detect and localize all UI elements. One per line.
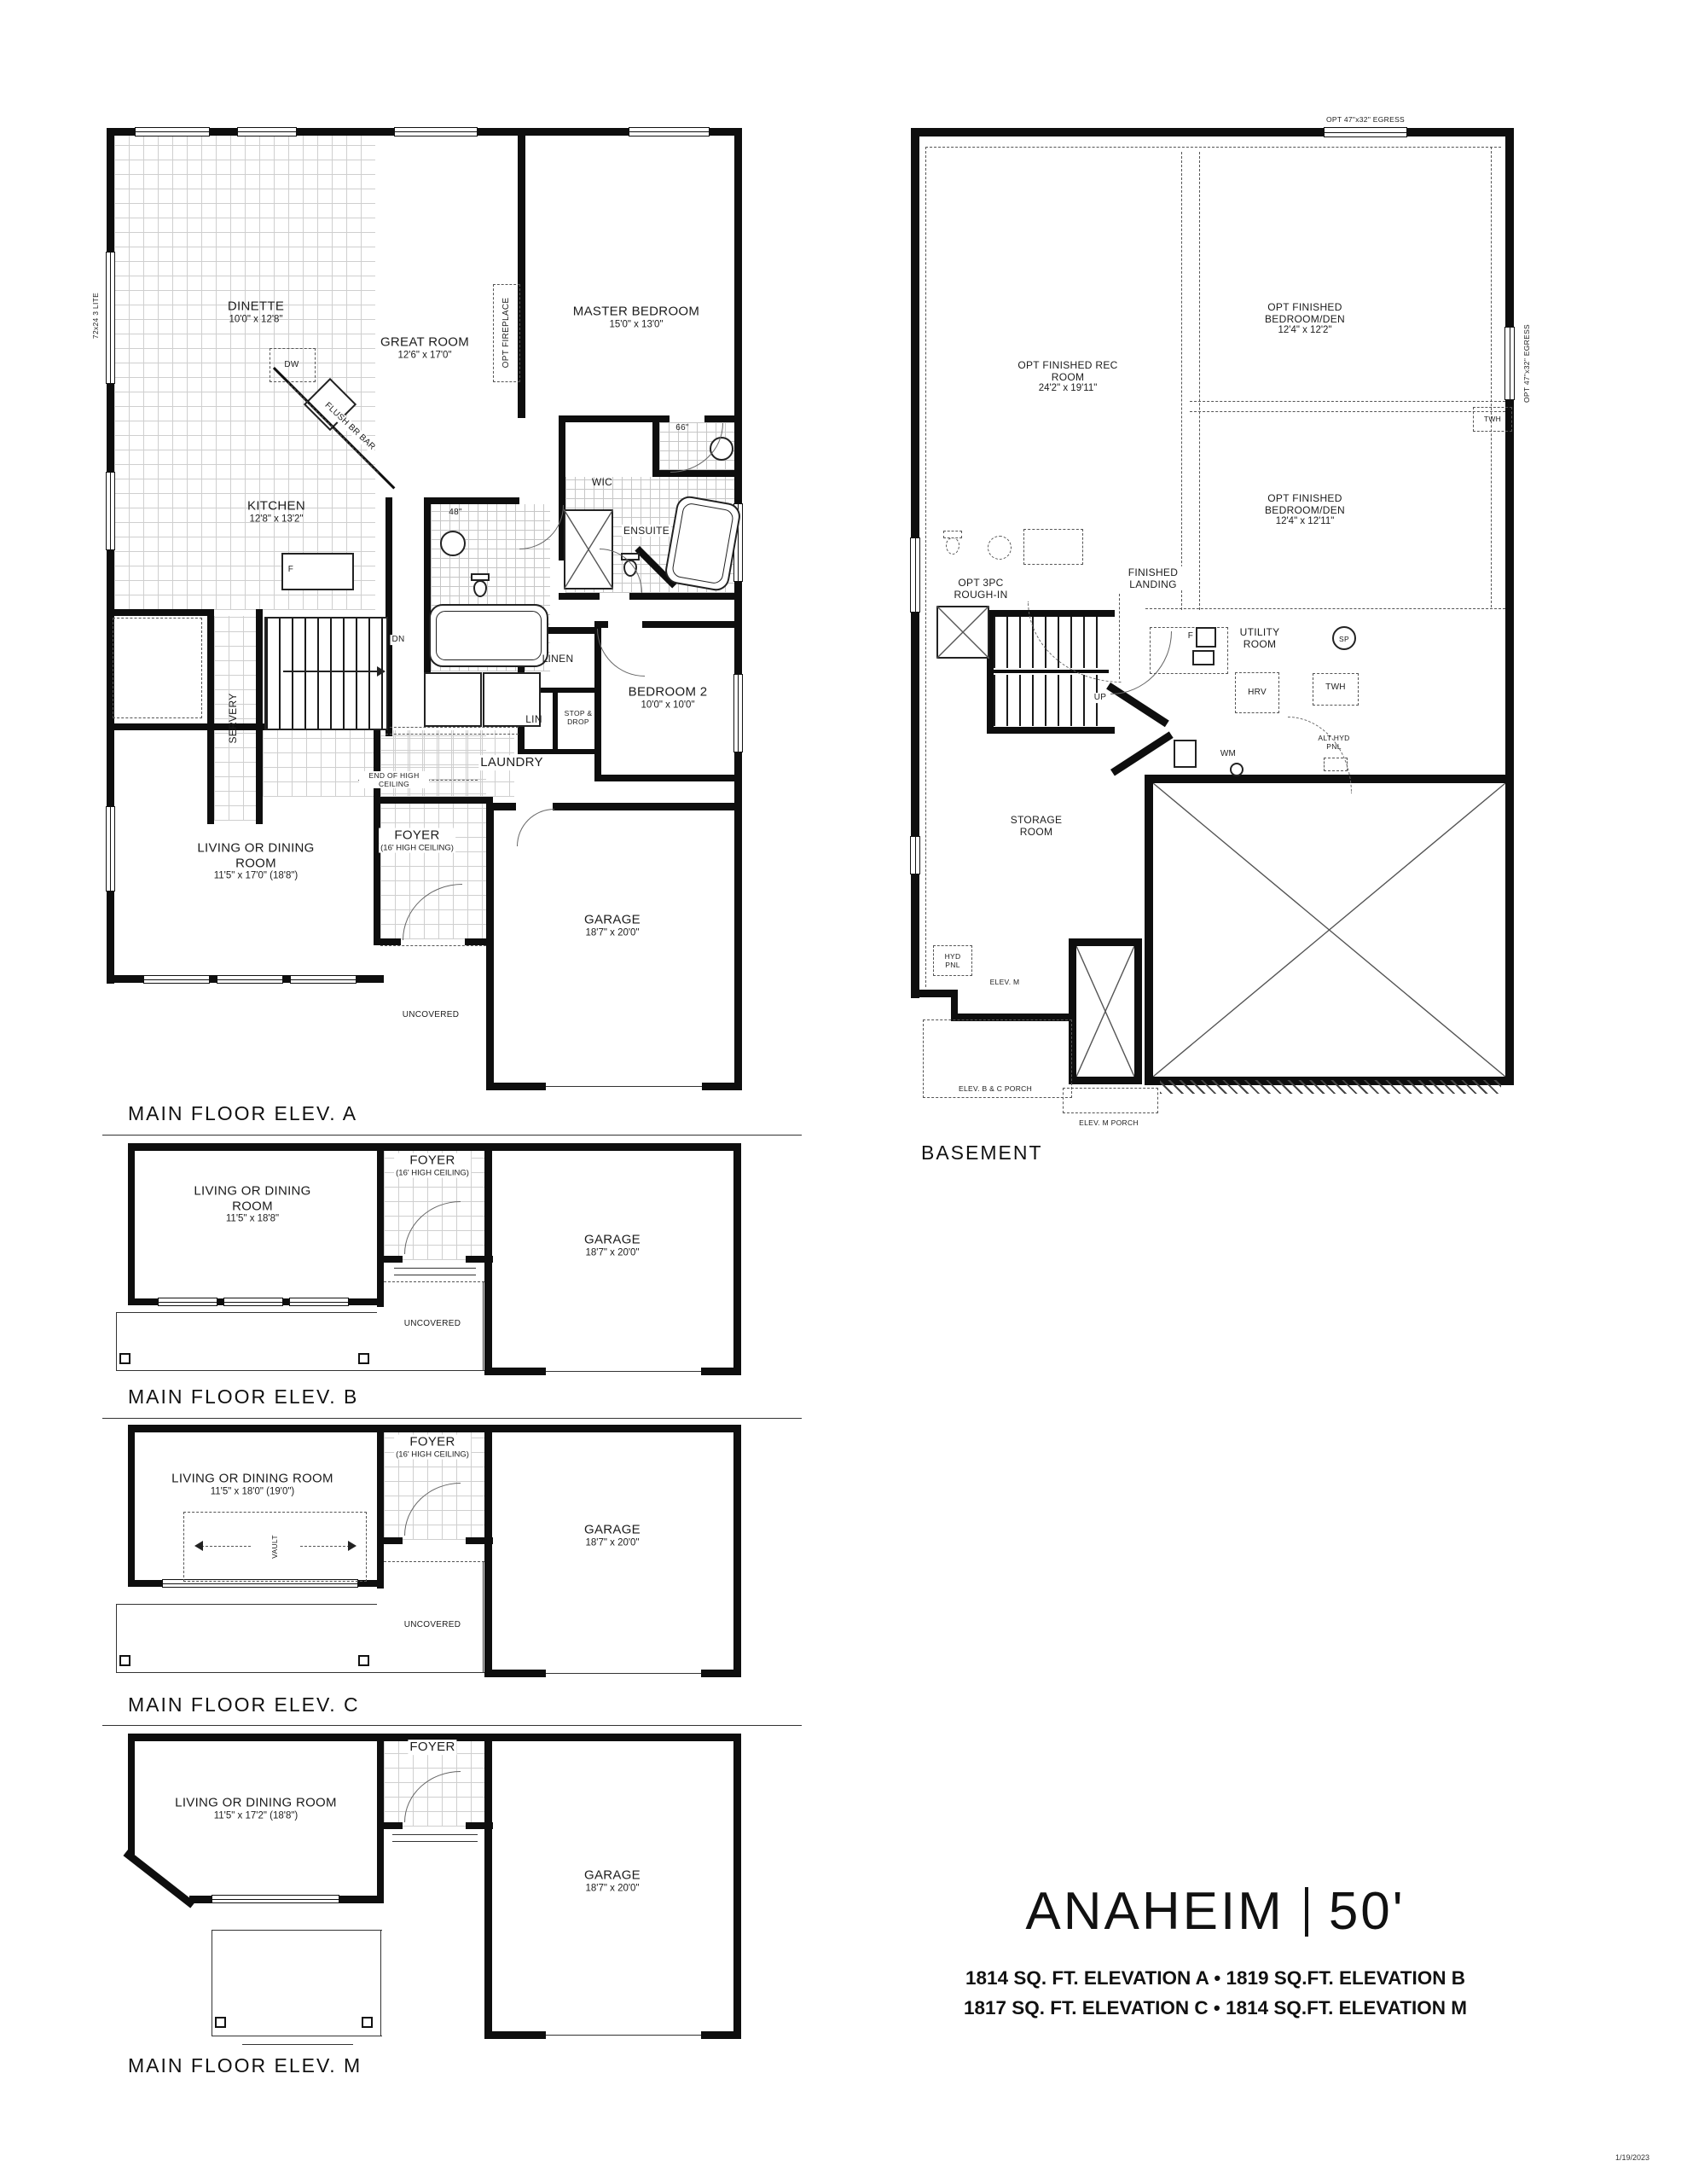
garage-door-line [546, 2035, 701, 2036]
label-text: HYD PNL [937, 952, 968, 969]
wall [701, 1368, 741, 1375]
room-dims: 24'2" x 19'11" [1015, 383, 1122, 395]
room-label-den2: OPT FINISHED BEDROOM/DEN 12'4" x 12'11" [1241, 492, 1369, 528]
room-label-foyer-b: FOYER (16' HIGH CEILING) [394, 1153, 471, 1178]
porch-pier-x [1076, 946, 1134, 1077]
room-name: LIVING OR DINING ROOM [183, 841, 328, 871]
room-dims: 11'5" x 18'8" [180, 1214, 325, 1226]
wall [484, 1425, 492, 1677]
insulation-dashed [925, 147, 926, 987]
note-text: END OF HIGH CEILING [359, 771, 429, 788]
window [910, 836, 920, 874]
window [223, 1298, 283, 1306]
separator [102, 1418, 802, 1419]
floorplan-sheet: DINETTE 10'0" x 12'8" GREAT ROOM 12'6" x… [0, 0, 1687, 2184]
room-dims: 18'7" x 20'0" [584, 1247, 641, 1259]
label-text: HRV [1248, 688, 1267, 698]
porch-edge [116, 1370, 484, 1371]
porch-edge [116, 1672, 484, 1673]
wall [128, 1143, 135, 1305]
washer [424, 672, 482, 727]
wall [256, 609, 263, 824]
label-egress-right: OPT 47"x32" EGRESS [1522, 324, 1531, 403]
wall [484, 1368, 546, 1375]
window [106, 472, 115, 550]
partition-dashed [1181, 152, 1182, 610]
partition-dashed [1190, 411, 1505, 412]
label-opt-fireplace: OPT FIREPLACE [501, 296, 512, 370]
wall [486, 1083, 546, 1090]
room-label-foyer-m: FOYER [408, 1740, 456, 1755]
room-name: FOYER [408, 1740, 456, 1755]
label-sp: SP [1339, 635, 1349, 643]
wall [642, 621, 742, 628]
wall [987, 727, 1115, 734]
uncovered-dashed [380, 945, 486, 946]
wall [128, 1425, 135, 1587]
room-label-ensuite: ENSUITE [622, 525, 671, 537]
label-hyd-pnl: HYD PNL [937, 952, 968, 969]
label-window-lite: 72x24 3 LITE [91, 293, 100, 339]
label-text: TWH [1325, 682, 1346, 693]
porch-edge [116, 1604, 117, 1672]
window [910, 537, 920, 613]
window [289, 1298, 349, 1306]
wall [377, 1537, 403, 1544]
room-name: DINETTE [228, 299, 284, 314]
roughin-basin [988, 536, 1012, 560]
room-name: FOYER [394, 1435, 471, 1450]
dim-66: 66" [675, 423, 689, 433]
room-name: FOYER [379, 828, 455, 844]
room-dims: 11'5" x 18'0" (19'0") [171, 1486, 333, 1498]
label-twh: TWH [1325, 682, 1346, 693]
wall [733, 1143, 741, 1375]
basement-title: BASEMENT [921, 1141, 1043, 1165]
partition-dashed [1190, 401, 1505, 402]
wall [377, 1822, 403, 1829]
label-uncovered-b: UNCOVERED [404, 1319, 461, 1329]
label-text: OPT 47"x32" EGRESS [1522, 324, 1531, 403]
porch-post [215, 2017, 226, 2028]
label-text: WM [1220, 749, 1236, 759]
wall [652, 415, 659, 477]
specs-line-1: 1814 SQ. FT. ELEVATION A • 1819 SQ.FT. E… [887, 1964, 1544, 1994]
room-note: (16' HIGH CEILING) [394, 1449, 471, 1459]
uncovered-edge [483, 1281, 484, 1370]
porch-post [362, 2017, 373, 2028]
room-dims: 10'0" x 12'8" [228, 314, 284, 326]
room-label-master: MASTER BEDROOM 15'0" x 13'0" [572, 304, 700, 330]
egress-window [1324, 127, 1407, 137]
landing-wall [1110, 731, 1174, 775]
label-vault: VAULT [270, 1535, 279, 1559]
wall [378, 797, 493, 804]
room-label-garage-m: GARAGE 18'7" x 20'0" [584, 1867, 641, 1894]
label-dw: DW [284, 360, 299, 370]
label-text: ELEV. M [988, 978, 1022, 986]
room-name: LIN [525, 713, 542, 725]
room-label-rec-room: OPT FINISHED REC ROOM 24'2" x 19'11" [1015, 359, 1122, 395]
label-text: ELEV. B & C PORCH [959, 1084, 1032, 1093]
room-label-bedroom2: BEDROOM 2 10'0" x 10'0" [612, 684, 723, 711]
wall [377, 1425, 384, 1589]
wall [1069, 938, 1142, 946]
stair-arrow-line [283, 671, 377, 672]
window [106, 806, 115, 892]
date-stamp: 1/19/2023 [1615, 2153, 1649, 2162]
room-name: KITCHEN [247, 498, 305, 514]
room-name: GREAT ROOM [380, 334, 469, 350]
room-name: GARAGE [584, 1867, 641, 1883]
partition-dashed [1145, 608, 1505, 609]
porch-edge [116, 1604, 377, 1605]
wall [594, 775, 742, 781]
stair-arrow-head [377, 666, 386, 677]
label-fridge: F [288, 565, 293, 575]
room-label-living-b: LIVING OR DINING ROOM 11'5" x 18'8" [180, 1184, 325, 1226]
unexcavated-x [1153, 783, 1505, 1077]
room-dims: 18'7" x 20'0" [584, 1883, 641, 1895]
room-label-roughin: OPT 3PC ROUGH-IN [941, 577, 1022, 601]
room-dims: 12'4" x 12'2" [1241, 325, 1369, 337]
room-name: STORAGE ROOM [996, 814, 1077, 838]
model-frontage: 50' [1329, 1881, 1406, 1942]
room-dims: 18'7" x 20'0" [584, 1537, 641, 1549]
label-uncovered-c: UNCOVERED [404, 1620, 461, 1630]
wall [652, 470, 742, 477]
room-label-den1: OPT FINISHED BEDROOM/DEN 12'4" x 12'2" [1241, 301, 1369, 337]
room-dims: 12'4" x 12'11" [1241, 516, 1369, 528]
room-note: (16' HIGH CEILING) [394, 1168, 471, 1177]
pantry-dashed [113, 618, 202, 718]
wall [484, 1143, 492, 1375]
uncovered-dashed [384, 1281, 484, 1282]
room-label-living-m: LIVING OR DINING ROOM 11'5" x 17'2" (18'… [175, 1795, 337, 1821]
window [733, 674, 743, 752]
specs-line-2: 1817 SQ. FT. ELEVATION C • 1814 SQ.FT. E… [887, 1994, 1544, 2024]
room-label-living: LIVING OR DINING ROOM 11'5" x 17'0" (18'… [183, 841, 328, 883]
room-name: LIVING OR DINING ROOM [175, 1795, 337, 1810]
vault-arrow-line [201, 1546, 251, 1547]
window [158, 1298, 217, 1306]
room-name: SERVERY [227, 693, 239, 743]
floor-drain [1174, 740, 1197, 768]
room-dims: 11'5" x 17'2" (18'8") [175, 1810, 337, 1822]
wall [128, 1425, 740, 1432]
insulation-dashed [1491, 147, 1492, 607]
dim-text: 66" [675, 423, 689, 433]
room-label-garage: GARAGE 18'7" x 20'0" [584, 912, 641, 938]
window [629, 127, 710, 136]
room-dims: 11'5" x 17'0" (18'8") [183, 871, 328, 883]
vault-arrow-right [348, 1541, 357, 1551]
label-alt-hyd: ALT HYD PNL [1314, 734, 1354, 751]
label-text: 72x24 3 LITE [91, 293, 100, 339]
toilet [471, 573, 490, 599]
label-text: ALT HYD PNL [1314, 734, 1354, 751]
room-name: OPT FINISHED BEDROOM/DEN [1241, 301, 1369, 325]
room-label-utility: UTILITY ROOM [1226, 626, 1294, 650]
note-end-high-ceiling: END OF HIGH CEILING [359, 771, 429, 788]
wall [518, 749, 599, 754]
egress-window [1504, 327, 1515, 400]
wall [484, 2031, 546, 2039]
porch-post [358, 1353, 369, 1364]
porch-edge [212, 1930, 382, 1931]
window [237, 127, 297, 136]
room-label-great-room: GREAT ROOM 12'6" x 17'0" [380, 334, 469, 361]
room-label-living-c: LIVING OR DINING ROOM 11'5" x 18'0" (19'… [171, 1471, 333, 1497]
wall [128, 1734, 135, 1855]
tile-floor [114, 136, 375, 610]
room-label-lin: LIN [525, 713, 542, 725]
bay-window [290, 975, 357, 984]
wall [702, 1083, 742, 1090]
bedroom2-door-arc [597, 629, 645, 677]
room-label-foyer-c: FOYER (16' HIGH CEILING) [394, 1435, 471, 1460]
label-dn: DN [390, 635, 406, 645]
porch-m-outline [1063, 1088, 1158, 1113]
model-title: ANAHEIM 50' [887, 1881, 1544, 1942]
stair-treads [266, 619, 386, 729]
step-line [242, 2044, 353, 2045]
room-name: STOP & DROP [559, 709, 598, 726]
model-name: ANAHEIM [1025, 1881, 1284, 1942]
room-dims: 10'0" x 10'0" [612, 700, 723, 712]
bathtub [429, 604, 548, 667]
room-label-dinette: DINETTE 10'0" x 12'8" [228, 299, 284, 325]
room-dims: 12'6" x 17'0" [380, 350, 469, 362]
label-twh-alt: TWH [1484, 415, 1501, 423]
wall [377, 1256, 403, 1263]
room-name: LAUNDRY [478, 755, 545, 770]
step-line [392, 1834, 478, 1835]
room-name: LIVING OR DINING ROOM [180, 1184, 325, 1214]
label-elev-m: ELEV. M [988, 978, 1022, 986]
window [212, 1895, 339, 1903]
furnace [1196, 627, 1216, 648]
wall [207, 609, 214, 824]
wall [1134, 938, 1142, 1083]
label-text: ELEV. M PORCH [1079, 1118, 1139, 1127]
label-text: UP [1093, 693, 1109, 703]
room-name: ENSUITE [622, 525, 671, 537]
garage-door-line [546, 1673, 701, 1674]
window [106, 252, 115, 384]
room-dims: 12'8" x 13'2" [247, 514, 305, 526]
room-name: WIC [592, 476, 612, 488]
window [135, 127, 210, 136]
separator [102, 1725, 802, 1726]
room-label-servery: SERVERY [227, 693, 239, 743]
room-dims: 18'7" x 20'0" [584, 927, 641, 939]
wall [701, 2031, 741, 2039]
room-name: GARAGE [584, 912, 641, 927]
wall [1505, 128, 1514, 1085]
window [394, 127, 478, 136]
opening-dashed [386, 734, 519, 735]
uncovered-edge [483, 1561, 484, 1672]
room-name: FINISHED LANDING [1115, 566, 1191, 590]
wall [107, 609, 213, 616]
label-text: TWH [1484, 415, 1501, 423]
garage-door-arc [517, 809, 554, 846]
room-label-kitchen: KITCHEN 12'8" x 13'2" [247, 498, 305, 525]
label-text: UNCOVERED [403, 1010, 460, 1020]
plan-b-title: MAIN FLOOR ELEV. B [128, 1385, 358, 1409]
room-label-wic: WIC [592, 476, 612, 488]
label-porch-m: ELEV. M PORCH [1079, 1118, 1139, 1127]
room-name: LIVING OR DINING ROOM [171, 1471, 333, 1486]
wall [377, 1734, 384, 1897]
wall [733, 1425, 741, 1677]
room-name: FOYER [394, 1153, 471, 1169]
label-uncovered: UNCOVERED [403, 1010, 460, 1020]
footing-hatch [1160, 1080, 1501, 1094]
wall [484, 1734, 492, 2039]
wall [377, 1143, 384, 1307]
bay-window [217, 975, 283, 984]
wall [424, 497, 519, 504]
separator [102, 1135, 802, 1136]
bay-window [143, 975, 210, 984]
wall [911, 128, 1514, 136]
porch-post [119, 1655, 130, 1666]
room-name: OPT FINISHED REC ROOM [1015, 359, 1122, 383]
wall [553, 688, 558, 754]
insulation-dashed [925, 147, 1501, 148]
room-name: OPT FINISHED BEDROOM/DEN [1241, 492, 1369, 516]
wall [701, 1670, 741, 1677]
garage-door-line [546, 1371, 701, 1372]
label-furnace: F [1188, 631, 1193, 642]
room-name: OPT 3PC ROUGH-IN [941, 577, 1022, 601]
label-text: DW [284, 360, 299, 370]
landing-leader [1119, 594, 1120, 679]
step-line [392, 1841, 478, 1842]
label-text: UNCOVERED [404, 1319, 461, 1329]
room-name: LINEN [542, 653, 574, 665]
storage-door-arc [1288, 717, 1352, 793]
room-name: GARAGE [584, 1522, 641, 1537]
plan-c-title: MAIN FLOOR ELEV. C [128, 1693, 360, 1716]
roughin-counter [1023, 529, 1083, 565]
wall [374, 938, 401, 945]
porch-edge [212, 2036, 382, 2036]
label-text: OPT FIREPLACE [501, 296, 512, 370]
porch-edge [212, 1930, 212, 2036]
room-label-linen: LINEN [542, 653, 574, 665]
label-text: OPT 47"x32" EGRESS [1326, 115, 1405, 124]
room-label-laundry: LAUNDRY [478, 755, 545, 770]
label-porch-bc: ELEV. B & C PORCH [959, 1084, 1032, 1093]
step-line [394, 1268, 476, 1269]
dim-text: 48" [449, 508, 462, 518]
label-text: DN [390, 635, 406, 645]
wm-valve [1230, 763, 1244, 776]
specs-lines: 1814 SQ. FT. ELEVATION A • 1819 SQ.FT. E… [887, 1964, 1544, 2024]
wall [734, 128, 742, 1090]
garage-door-line [546, 1086, 702, 1087]
label-wm: WM [1220, 749, 1236, 759]
partition-dashed [1199, 152, 1200, 610]
room-name: BEDROOM 2 [612, 684, 723, 700]
wall [486, 803, 494, 1090]
wall [559, 593, 600, 600]
room-label-garage-c: GARAGE 18'7" x 20'0" [584, 1522, 641, 1548]
room-dims: 15'0" x 13'0" [572, 319, 700, 331]
porch-post [119, 1353, 130, 1364]
wall [704, 415, 742, 422]
plan-a-title: MAIN FLOOR ELEV. A [128, 1102, 357, 1125]
wall [128, 1143, 740, 1151]
stair-treads [994, 675, 1109, 726]
vault-arrow-line [300, 1546, 350, 1547]
vault-arrow-left [194, 1541, 203, 1551]
porch-edge [116, 1312, 117, 1370]
room-name: GARAGE [584, 1232, 641, 1247]
wall [733, 1734, 741, 2039]
room-name: UTILITY ROOM [1226, 626, 1294, 650]
room-name: MASTER BEDROOM [572, 304, 700, 319]
opening-dashed [386, 727, 519, 728]
furnace2 [1192, 650, 1215, 665]
roughin-toilet [943, 531, 962, 556]
dim-48: 48" [449, 508, 462, 518]
porch-post [358, 1655, 369, 1666]
wall [123, 1850, 194, 1908]
porch-edge [380, 1930, 381, 2036]
wall [553, 803, 742, 810]
label-up: UP [1093, 693, 1109, 703]
vanity-basin [440, 531, 466, 556]
porch-edge [116, 1312, 377, 1313]
label-egress-top: OPT 47"x32" EGRESS [1326, 115, 1405, 124]
step-line [394, 1275, 476, 1275]
plan-m-title: MAIN FLOOR ELEV. M [128, 2054, 362, 2077]
label-text: VAULT [270, 1535, 279, 1559]
wall [1145, 775, 1153, 1085]
room-label-stop-drop: STOP & DROP [559, 709, 598, 726]
room-label-garage-b: GARAGE 18'7" x 20'0" [584, 1232, 641, 1258]
label-text: UNCOVERED [404, 1620, 461, 1630]
title-divider [1305, 1887, 1308, 1937]
roughin-shower-x [936, 606, 989, 659]
room-label-foyer: FOYER (16' HIGH CEILING) [379, 828, 455, 853]
uncovered-dashed [384, 1561, 484, 1562]
label-text: F [1188, 631, 1193, 642]
room-label-storage: STORAGE ROOM [996, 814, 1077, 838]
bath-door-arc [519, 505, 564, 549]
label-text: SP [1339, 635, 1349, 643]
room-label-landing: FINISHED LANDING [1115, 566, 1191, 590]
title-block: ANAHEIM 50' 1814 SQ. FT. ELEVATION A • 1… [887, 1881, 1544, 2024]
wall [1069, 1077, 1142, 1084]
wall [484, 1670, 546, 1677]
label-text: F [288, 565, 293, 575]
wall [629, 593, 742, 600]
room-note: (16' HIGH CEILING) [379, 843, 455, 852]
label-hrv: HRV [1248, 688, 1267, 698]
